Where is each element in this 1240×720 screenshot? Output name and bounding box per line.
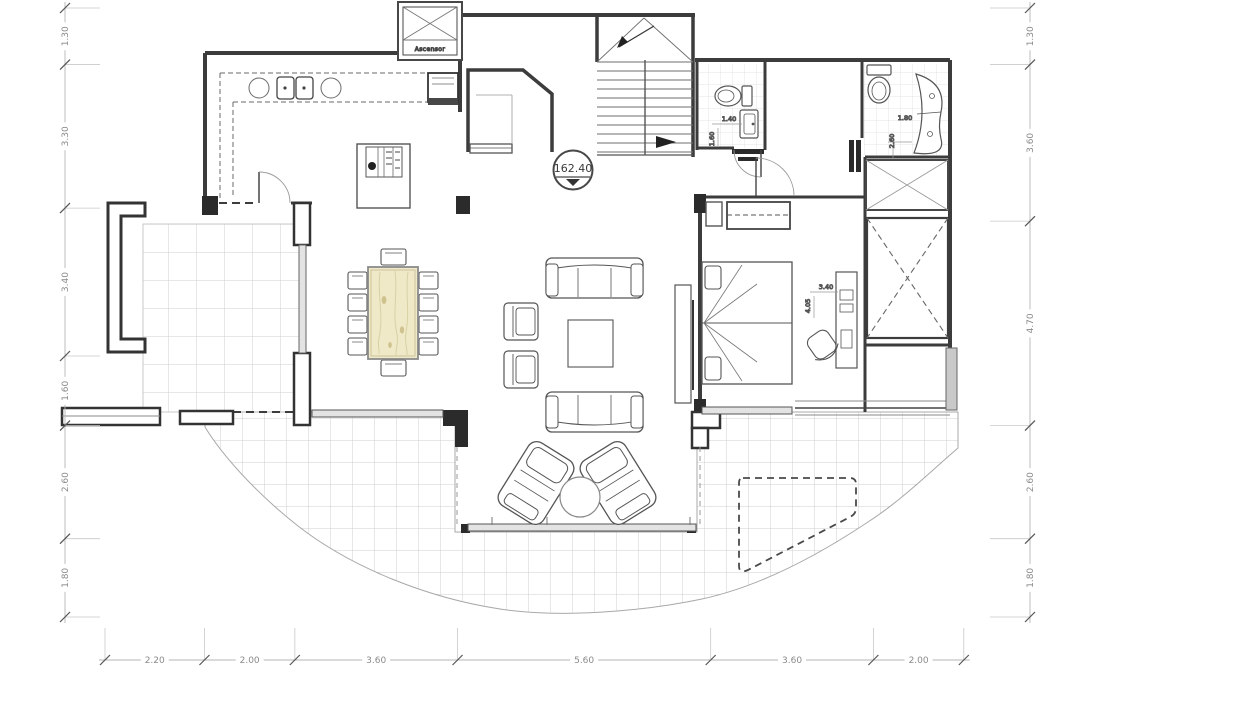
svg-text:1.30: 1.30 <box>61 26 71 46</box>
bay-south-glass <box>468 524 696 531</box>
left-terrace <box>143 224 300 412</box>
dimension-label: 2.60 <box>1024 468 1036 496</box>
bedroom-south-window <box>702 407 792 414</box>
stairs <box>597 18 693 155</box>
svg-text:3.30: 3.30 <box>61 126 71 146</box>
svg-text:3.60: 3.60 <box>782 656 802 666</box>
level-marker-value: 162.40 <box>554 162 593 175</box>
double-sink <box>277 77 313 99</box>
floor-plan-page: Ascensor 162.40 <box>0 0 1240 720</box>
dimension-label: 4.70 <box>1024 309 1036 337</box>
svg-text:4.70: 4.70 <box>1026 313 1036 333</box>
svg-text:2.20: 2.20 <box>145 656 165 666</box>
dimension-label: 1.60 <box>59 377 71 405</box>
svg-text:1.30: 1.30 <box>1026 26 1036 46</box>
bath2-depth-dim: 2.60 <box>888 134 896 148</box>
bath2-width-dim: 1.80 <box>898 114 912 122</box>
kitchen-island <box>357 144 410 208</box>
dimension-label: 1.30 <box>59 22 71 50</box>
dimension-label: 3.40 <box>59 268 71 296</box>
level-marker: 162.40 <box>554 151 593 190</box>
dimension-label: 2.60 <box>59 468 71 496</box>
living-room <box>504 258 643 432</box>
bath1-door <box>734 150 761 177</box>
x-rooms <box>866 160 948 338</box>
dimension-label: 2.00 <box>236 654 264 666</box>
bath1-width-dim: 1.40 <box>722 115 736 123</box>
svg-text:2.60: 2.60 <box>61 472 71 492</box>
svg-text:1.60: 1.60 <box>61 381 71 401</box>
svg-text:2.60: 2.60 <box>1026 472 1036 492</box>
dimension-label: 2.00 <box>905 654 933 666</box>
pantry-shelf <box>470 95 512 153</box>
sofa-top <box>546 258 643 298</box>
dining-set <box>348 249 438 376</box>
dimension-label: 2.20 <box>141 654 169 666</box>
bath1-depth-dim: 1.60 <box>708 132 716 146</box>
dimension-label: 1.30 <box>1024 22 1036 50</box>
dining-west-window <box>299 245 306 353</box>
dimension-label: 3.30 <box>59 122 71 150</box>
stair-down-arrow <box>656 136 676 148</box>
armchair-1 <box>504 303 538 340</box>
svg-text:3.60: 3.60 <box>1026 133 1036 153</box>
fridge-column <box>428 73 458 105</box>
floor-plan-canvas: Ascensor 162.40 <box>0 0 1240 720</box>
dimension-label: 1.80 <box>59 564 71 592</box>
tv-unit <box>675 285 693 403</box>
svg-text:5.60: 5.60 <box>574 656 594 666</box>
bedroom-wardrobe <box>706 202 790 229</box>
burner-left <box>249 78 269 98</box>
dimension-label: 3.60 <box>778 654 806 666</box>
desk <box>836 272 857 368</box>
bay-lounge <box>494 438 659 528</box>
round-side-table <box>560 477 600 517</box>
kitchen <box>220 73 458 208</box>
sofa-bottom <box>546 392 643 432</box>
svg-text:3.40: 3.40 <box>61 272 71 292</box>
svg-text:2.00: 2.00 <box>240 656 260 666</box>
elevator: Ascensor <box>398 2 462 60</box>
bed <box>702 262 792 384</box>
dimension-label: 1.80 <box>1024 564 1036 592</box>
svg-text:1.80: 1.80 <box>1026 568 1036 588</box>
dining-south-window <box>312 410 443 417</box>
kitchen-door <box>259 172 290 203</box>
dimension-label: 3.60 <box>362 654 390 666</box>
svg-text:2.00: 2.00 <box>909 656 929 666</box>
bedroom-width-dim: 3.40 <box>819 283 833 291</box>
bedroom-depth-dim: 4.05 <box>804 299 812 313</box>
dimension-label: 5.60 <box>570 654 598 666</box>
dimension-label: 3.60 <box>1024 129 1036 157</box>
toilet-1 <box>715 86 752 106</box>
cooktop-knob <box>368 162 376 170</box>
sink-1 <box>740 110 758 138</box>
coffee-table <box>568 320 613 367</box>
toilet-2 <box>867 65 891 103</box>
duct-hatch <box>946 348 957 410</box>
elevator-label: Ascensor <box>415 46 446 53</box>
svg-text:3.60: 3.60 <box>366 656 386 666</box>
burner-right <box>321 78 341 98</box>
svg-text:1.80: 1.80 <box>61 568 71 588</box>
planter-wall <box>108 203 145 352</box>
armchair-2 <box>504 351 538 388</box>
bedroom: 3.40 4.05 <box>675 202 857 403</box>
dining-table <box>368 267 418 359</box>
